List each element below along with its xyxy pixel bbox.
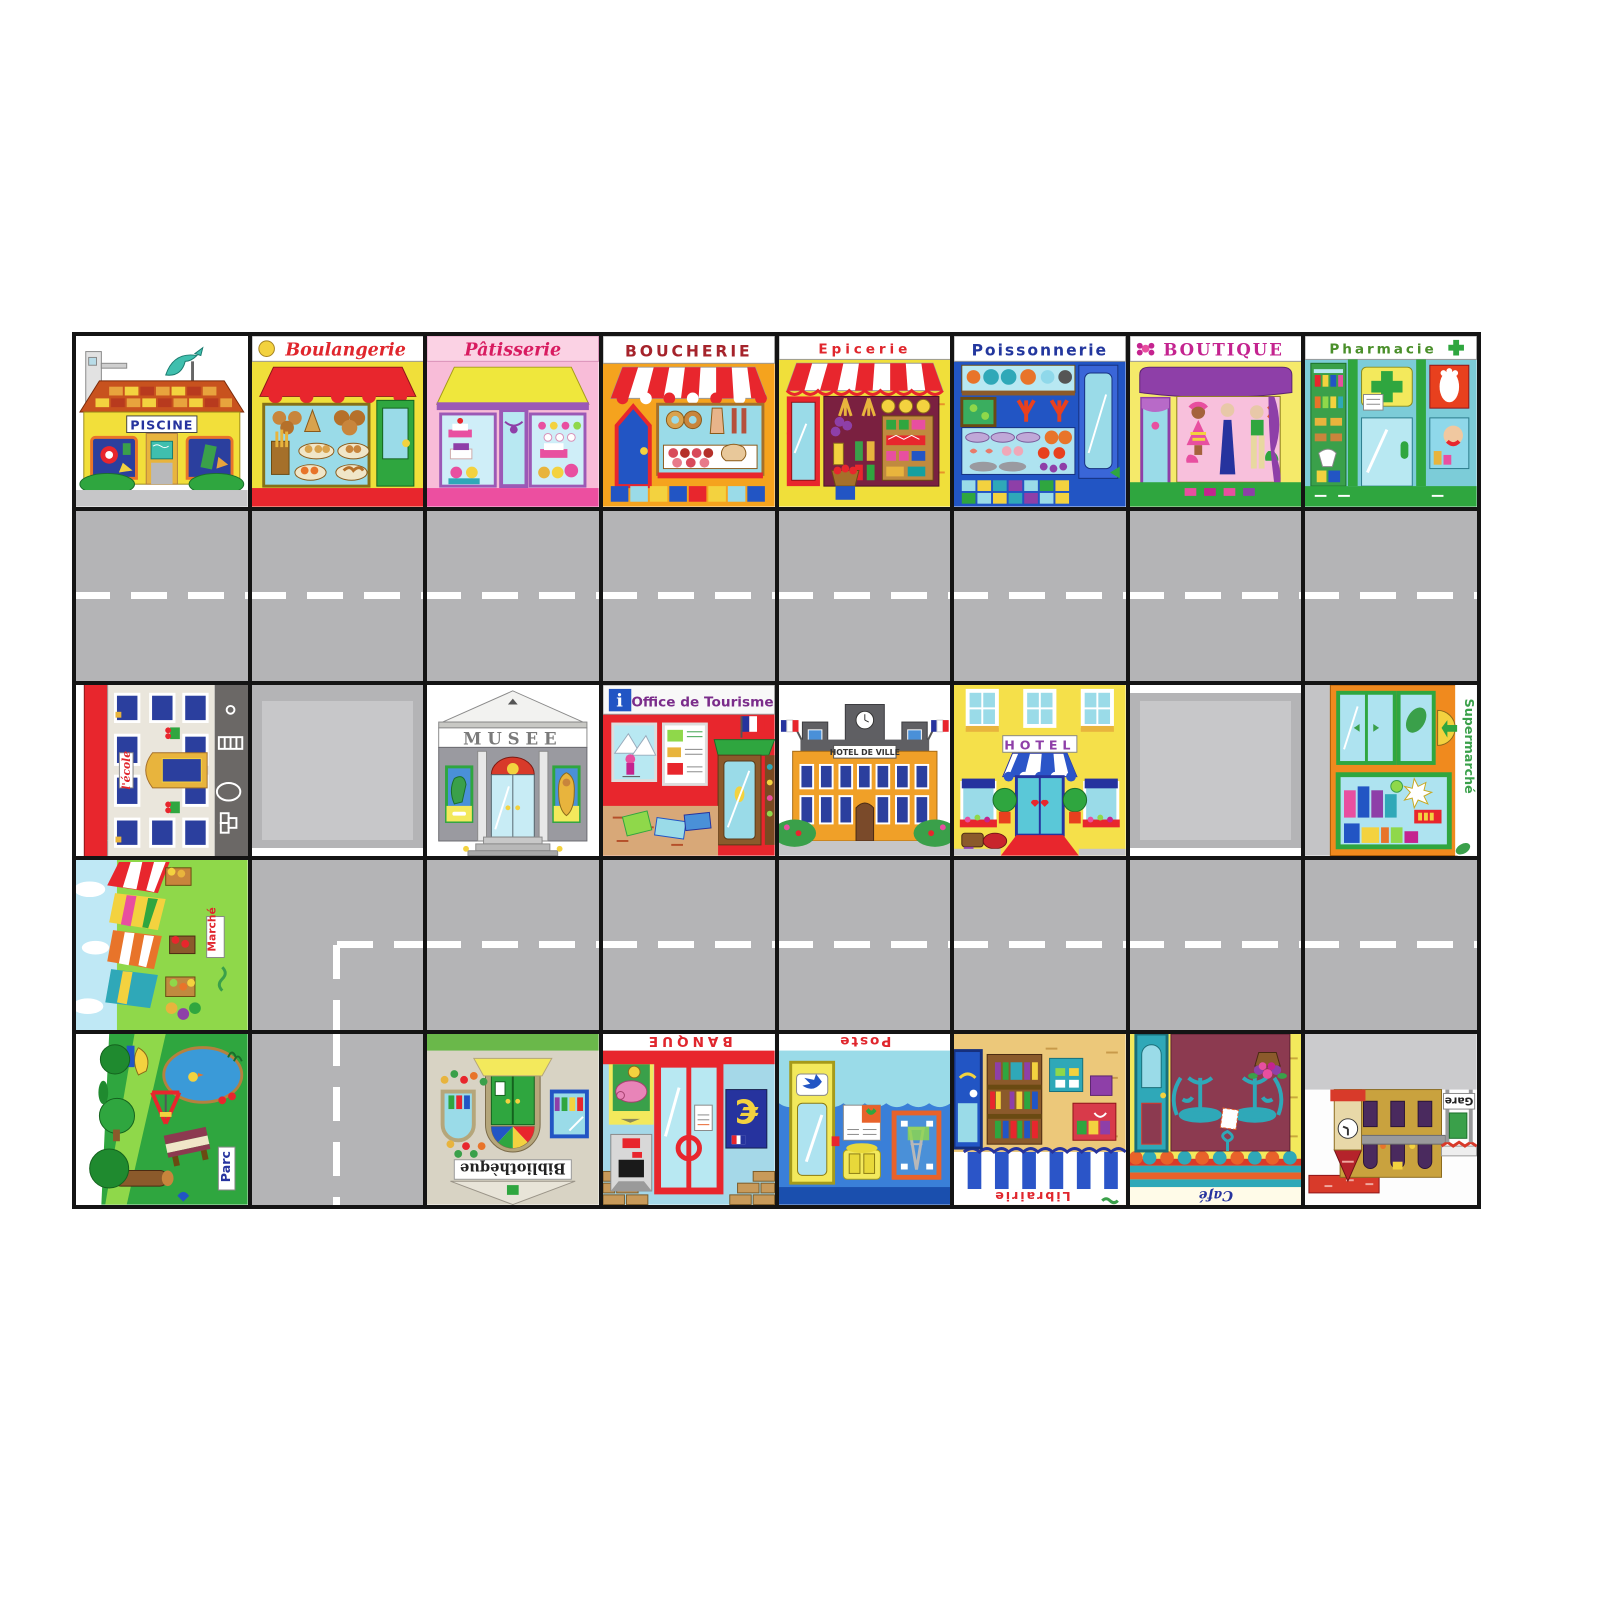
piscine-label: PISCINE bbox=[130, 418, 193, 433]
tile-empty-lot bbox=[1128, 683, 1304, 858]
pharmacie-label: Pharmacie bbox=[1330, 342, 1437, 358]
boucherie-label: BOUCHERIE bbox=[625, 342, 753, 360]
bibliotheque-label: Bibliothèque bbox=[460, 1160, 566, 1177]
road-dash-line bbox=[333, 945, 340, 1032]
ecole-label: l'école bbox=[120, 751, 133, 790]
atm bbox=[611, 1135, 652, 1192]
office-tourisme-label: Office de Tourisme bbox=[631, 695, 773, 711]
marche-label: Marché bbox=[205, 907, 218, 951]
cosmetics-poster bbox=[1430, 418, 1469, 469]
tariff-chart bbox=[843, 1106, 880, 1141]
tile-banque: € BANQUE bbox=[601, 1032, 777, 1207]
boutique-label: BOUTIQUE bbox=[1163, 339, 1283, 359]
librairie-label: Librairie bbox=[993, 1189, 1070, 1204]
shelf-unit bbox=[882, 416, 933, 480]
basket bbox=[831, 465, 858, 500]
road-tile bbox=[777, 858, 953, 1033]
tile-hotel-de-ville: HOTEL DE VILLE bbox=[777, 683, 953, 858]
road-tile bbox=[601, 509, 777, 684]
cafe-label: Café bbox=[1198, 1187, 1233, 1203]
road-tile bbox=[1303, 509, 1479, 684]
topiary bbox=[993, 789, 1016, 812]
tile-ecole: l'école bbox=[74, 683, 250, 858]
road-tile bbox=[1303, 858, 1479, 1033]
hotel-de-ville-label: HOTEL DE VILLE bbox=[829, 748, 899, 757]
school-roof bbox=[84, 685, 107, 856]
tile-boulangerie: Boulangerie bbox=[250, 334, 426, 509]
platform bbox=[1305, 1034, 1477, 1090]
column bbox=[478, 751, 487, 841]
awning bbox=[954, 1149, 1126, 1189]
phone-sign bbox=[843, 1144, 880, 1180]
shelf-unit bbox=[1311, 363, 1346, 486]
road-tile bbox=[1128, 858, 1304, 1033]
poster bbox=[1091, 1076, 1112, 1095]
banque-label: BANQUE bbox=[645, 1034, 733, 1049]
foot-poster bbox=[1430, 365, 1469, 408]
gare-label: Gare bbox=[1445, 1095, 1474, 1108]
map bbox=[654, 818, 685, 839]
tile-empty-lot bbox=[250, 683, 426, 858]
road-dash-line bbox=[337, 941, 425, 948]
upper-windows bbox=[800, 765, 928, 788]
menu-card bbox=[1220, 1108, 1238, 1129]
sidewalk bbox=[1130, 848, 1302, 856]
tile-office-tourisme: i Office de Tourisme bbox=[601, 683, 777, 858]
hotel-label: HOTEL bbox=[1004, 738, 1075, 753]
header-band bbox=[779, 1187, 951, 1205]
right-window bbox=[443, 1092, 474, 1141]
bookshelf bbox=[987, 1055, 1042, 1145]
entrance bbox=[486, 1076, 541, 1152]
pretzel-icon bbox=[258, 341, 274, 357]
road-tile bbox=[952, 858, 1128, 1033]
tile-poste: Poste bbox=[777, 1032, 953, 1207]
road-dash-line bbox=[74, 592, 250, 599]
ski-poster bbox=[613, 724, 656, 781]
tile-boucherie: BOUCHERIE bbox=[601, 334, 777, 509]
tile-gare: Gare bbox=[1303, 1032, 1479, 1207]
cafe-door bbox=[1136, 1034, 1167, 1151]
upper-windows bbox=[1364, 1144, 1432, 1170]
road-tile bbox=[952, 509, 1128, 684]
road-corner-tile bbox=[250, 858, 426, 1033]
red-display bbox=[1073, 1104, 1116, 1141]
euro-sign: € bbox=[726, 1090, 767, 1148]
tile-poissonnerie: Poissonnerie bbox=[952, 334, 1128, 509]
display-window bbox=[1339, 775, 1450, 847]
tile-librairie: Librairie bbox=[952, 1032, 1128, 1207]
tile-hotel: HOTEL bbox=[952, 683, 1128, 858]
town-map-board: PISCINE Boulangerie bbox=[72, 332, 1481, 1209]
tile-patisserie: Pâtisserie bbox=[425, 334, 601, 509]
awning bbox=[611, 367, 767, 404]
road-tile bbox=[250, 509, 426, 684]
top-shelf bbox=[962, 365, 1075, 395]
map bbox=[684, 813, 711, 831]
post-office-door bbox=[790, 1063, 839, 1184]
dinosaur-banner bbox=[447, 767, 472, 822]
sidewalk bbox=[1130, 685, 1302, 693]
piggy-poster bbox=[611, 1063, 652, 1123]
left-window bbox=[552, 1092, 587, 1137]
entrance-step bbox=[474, 1059, 552, 1077]
entrance-doors bbox=[1339, 693, 1435, 763]
shop-door bbox=[617, 406, 650, 486]
tile-pharmacie: Pharmacie bbox=[1303, 334, 1479, 509]
boulangerie-label: Boulangerie bbox=[284, 340, 406, 360]
road-vertical-tile bbox=[250, 1032, 426, 1207]
road-tile bbox=[777, 509, 953, 684]
eiffel-poster bbox=[894, 1113, 939, 1177]
lower-windows bbox=[1364, 1102, 1432, 1127]
sidewalk bbox=[252, 848, 424, 856]
fish-display bbox=[962, 428, 1075, 475]
town-hall-door bbox=[856, 803, 874, 841]
tile-cafe: Café bbox=[1128, 1032, 1304, 1207]
road-tile bbox=[1128, 509, 1304, 684]
grass bbox=[427, 1034, 599, 1051]
column bbox=[539, 751, 548, 841]
tile-bibliotheque: Bibliothèque bbox=[425, 1032, 601, 1207]
svg-text:€: € bbox=[735, 1092, 759, 1131]
brochure-poster bbox=[663, 724, 706, 784]
road-tile bbox=[425, 509, 601, 684]
road-tile bbox=[74, 509, 250, 684]
tile-parc: Parc bbox=[74, 1032, 250, 1207]
tile-epicerie: Epicerie bbox=[777, 334, 953, 509]
patisserie-label: Pâtisserie bbox=[464, 340, 562, 360]
svg-text:i: i bbox=[616, 692, 623, 712]
awning bbox=[1130, 1151, 1302, 1187]
poste-label: Poste bbox=[838, 1034, 891, 1049]
bank-doors bbox=[657, 1065, 719, 1192]
tile-supermarche: Supermarché bbox=[1303, 683, 1479, 858]
fish-tank bbox=[962, 398, 995, 425]
musee-label: MUSEE bbox=[463, 729, 562, 749]
awning bbox=[437, 367, 589, 404]
shop-door bbox=[954, 1051, 981, 1148]
road-tile bbox=[601, 858, 777, 1033]
awning bbox=[1140, 367, 1292, 397]
poissonnerie-label: Poissonnerie bbox=[972, 341, 1108, 359]
supermarche-label: Supermarché bbox=[1462, 699, 1477, 794]
upper-windows bbox=[966, 691, 1114, 732]
epicerie-label: Epicerie bbox=[818, 342, 911, 358]
parc-label: Parc bbox=[218, 1151, 233, 1182]
tile-musee: MUSEE bbox=[425, 683, 601, 858]
topiary bbox=[1063, 789, 1086, 812]
bell-icon bbox=[970, 1090, 978, 1098]
door-awning bbox=[714, 740, 774, 756]
pond bbox=[164, 1048, 242, 1105]
tile-boutique: BOUTIQUE bbox=[1128, 334, 1304, 509]
tile-marche: Marché bbox=[74, 858, 250, 1033]
awning bbox=[786, 363, 942, 394]
road-dash-line bbox=[333, 1032, 340, 1207]
postcard-stand bbox=[1050, 1059, 1083, 1092]
sarcophagus-banner bbox=[554, 767, 579, 822]
shop-door bbox=[501, 410, 526, 486]
road-tile bbox=[425, 858, 601, 1033]
tile-piscine: PISCINE bbox=[74, 334, 250, 509]
